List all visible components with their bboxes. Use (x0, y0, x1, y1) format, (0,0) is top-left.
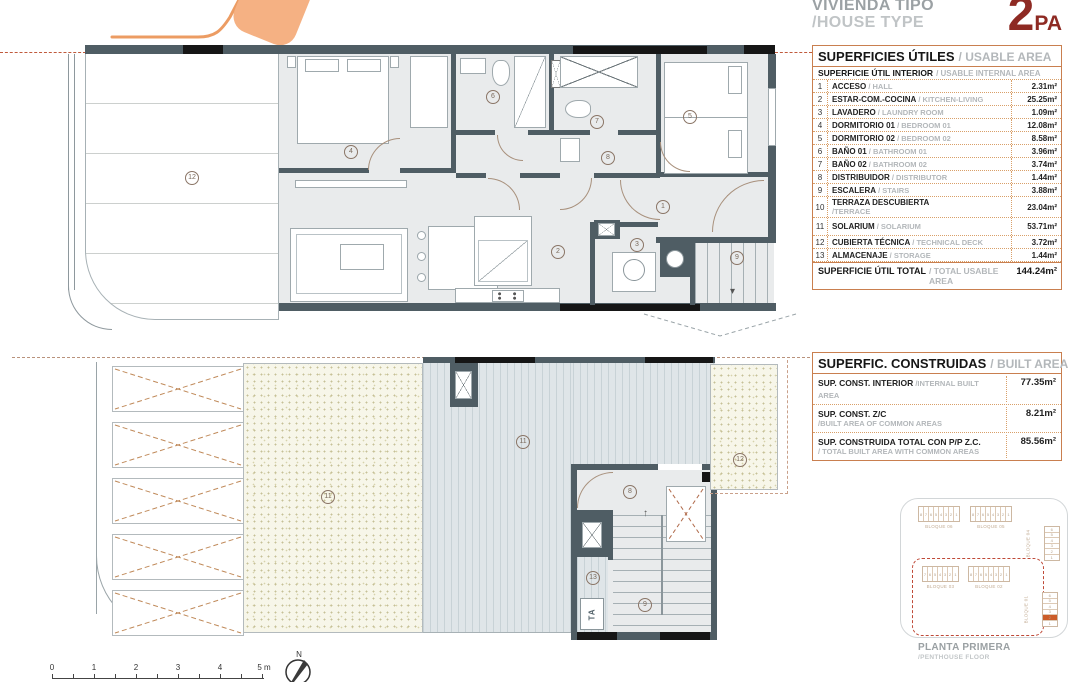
deck-11 (423, 363, 575, 633)
row-number: 7 (813, 158, 828, 170)
shower-icon (514, 56, 546, 128)
chair-icon (417, 252, 426, 261)
row-area: 85.56m² (1006, 435, 1061, 458)
usable-row-6: 6BAÑO 01 / BATHROOM 013.96m² (813, 145, 1061, 158)
built-row-3: SUP. CONSTRUIDA TOTAL CON P/P Z.C./ TOTA… (813, 433, 1061, 460)
usable-total-row: SUPERFICIE ÚTIL TOTAL / TOTAL USABLE ARE… (813, 262, 1061, 289)
total-label-es: SUPERFICIE ÚTIL TOTAL (818, 266, 926, 276)
usable-row-4: 4DORMITORIO 01 / BEDROOM 0112.08m² (813, 119, 1061, 132)
keyplan-block-01: 654321BLOQUE 01 (1012, 592, 1058, 627)
chair-icon (417, 273, 426, 282)
room-marker-13: 13 (586, 571, 600, 585)
room-marker-4: 4 (344, 145, 358, 159)
sink-icon (460, 58, 486, 74)
row-name: LAVADERO / LAUNDRY ROOM (828, 107, 1011, 118)
room-marker-12: 12 (185, 171, 199, 185)
keyplan-block-03: 7654321BLOQUE 03 (922, 566, 959, 589)
row-name: BAÑO 01 / BATHROOM 01 (828, 146, 1011, 157)
row-name: DORMITORIO 02 / BEDROOM 02 (828, 133, 1011, 144)
room-marker-1: 1 (656, 200, 670, 214)
wall (279, 168, 369, 173)
room-marker-2: 2 (551, 245, 565, 259)
table-title-es: SUPERFICIES ÚTILES (818, 49, 955, 64)
pillow-icon (347, 59, 381, 72)
subheader-en: / USABLE INTERNAL AREA (936, 69, 1040, 78)
built-table-header: SUPERFIC. CONSTRUIDAS / BUILT AREA (813, 353, 1061, 374)
usable-row-1: 1ACCESO / HALL2.31m² (813, 80, 1061, 93)
window-icon (768, 88, 776, 146)
row-number: 12 (813, 236, 828, 248)
row-area: 53.71m² (1011, 218, 1061, 235)
pillow-icon (728, 66, 742, 94)
row-area: 77.35m² (1006, 376, 1061, 402)
usable-row-7: 7BAÑO 02 / BATHROOM 023.74m² (813, 158, 1061, 171)
keyplan-block-label: BLOQUE 01 (1023, 596, 1028, 624)
pergola-frame (112, 534, 244, 580)
opening (658, 464, 702, 470)
coffee-table-icon (340, 244, 384, 270)
built-row-1: SUP. CONST. INTERIOR /INTERNAL BUILT ARE… (813, 374, 1061, 405)
usable-rows: 1ACCESO / HALL2.31m²2ESTAR-COM.-COCINA /… (813, 80, 1061, 262)
room-marker-12: 12 (733, 453, 747, 467)
row-number: 4 (813, 119, 828, 131)
washing-machine-icon (623, 259, 645, 281)
row-area: 2.31m² (1011, 80, 1061, 92)
wall (528, 130, 590, 135)
built-row-2: SUP. CONST. Z/C/BUILT AREA OF COMMON ARE… (813, 405, 1061, 433)
wall (183, 45, 223, 54)
usable-row-11: 11SOLARIUM / SOLARIUM53.71m² (813, 218, 1061, 236)
usable-row-12: 12CUBIERTA TÉCNICA / TECHNICAL DECK3.72m… (813, 236, 1061, 249)
keyplan-caption-subtitle: /PENTHOUSE FLOOR (918, 654, 990, 661)
railing-curve (68, 286, 112, 330)
room-marker-11: 11 (321, 490, 335, 504)
stair-void (560, 56, 638, 88)
terrace-12-lower (710, 364, 778, 490)
row-area: 8.21m² (1006, 407, 1061, 430)
usable-row-5: 5DORMITORIO 02 / BEDROOM 028.58m² (813, 132, 1061, 145)
keyplan-unit: 1 (1006, 507, 1011, 521)
keyplan-block-label: BLOQUE 06 (925, 524, 953, 529)
wall (768, 54, 776, 240)
scale-label: 1 (92, 663, 96, 672)
stair-arrow-icon: ▾ (730, 286, 735, 297)
usable-row-10: 10TERRAZA DESCUBIERTA /TERRACE23.04m² (813, 197, 1061, 218)
pergola-frame (112, 478, 244, 524)
usable-row-9: 9ESCALERA / STAIRS3.88m² (813, 184, 1061, 197)
row-number: 1 (813, 80, 828, 92)
toilet-icon (492, 60, 510, 86)
row-name: TERRAZA DESCUBIERTA /TERRACE (828, 197, 1011, 217)
usable-row-3: 3LAVADERO / LAUNDRY ROOM1.09m² (813, 106, 1061, 119)
row-name: ESTAR-COM.-COCINA / KITCHEN-LIVING (828, 94, 1011, 105)
row-area: 8.58m² (1011, 132, 1061, 144)
wall (618, 130, 656, 135)
row-number: 5 (813, 132, 828, 144)
row-name: ESCALERA / STAIRS (828, 185, 1011, 196)
north-arrow-icon (282, 657, 314, 682)
wall (455, 130, 495, 135)
row-label: SUP. CONST. Z/C/BUILT AREA OF COMMON ARE… (813, 407, 1006, 430)
terrace-12 (85, 54, 279, 320)
row-label: SUP. CONSTRUIDA TOTAL CON P/P Z.C./ TOTA… (813, 435, 1006, 458)
table-title-es: SUPERFIC. CONSTRUIDAS (818, 356, 986, 371)
row-name: CUBIERTA TÉCNICA / TECHNICAL DECK (828, 237, 1011, 248)
row-name: DORMITORIO 01 / BEDROOM 01 (828, 120, 1011, 131)
house-type-header: VIVIENDA TIPO /HOUSE TYPE 2PA (812, 0, 1064, 41)
tv-unit-icon (295, 180, 407, 188)
keyplan-caption-title: PLANTA PRIMERA (918, 642, 1011, 653)
wall (656, 54, 661, 177)
total-value: 144.24m² (1016, 266, 1057, 277)
room-marker-3: 3 (630, 238, 644, 252)
total-label-en: / TOTAL USABLE AREA (929, 266, 1016, 286)
keyplan-block-06: 87654321BLOQUE 06 (918, 506, 960, 529)
house-type-code: 2PA (1008, 0, 1062, 39)
row-name: ALMACENAJE / STORAGE (828, 250, 1011, 261)
boundary-dashed-line (0, 52, 86, 53)
pergola-frame (112, 590, 244, 636)
wall (560, 304, 700, 311)
wall (577, 632, 617, 640)
keyplan-unit: 1 (954, 507, 959, 521)
pergola-frame (112, 422, 244, 468)
sheet: ▾ 12 4 6 7 5 1 2 3 8 9 TA ↑ (0, 0, 1070, 682)
pillow-icon (728, 130, 742, 158)
keyplan-block-label: BLOQUE 04 (1025, 530, 1030, 558)
keyplan-block-label: BLOQUE 03 (927, 584, 955, 589)
row-area: 3.74m² (1011, 158, 1061, 170)
row-number: 2 (813, 93, 828, 105)
row-area: 1.44m² (1011, 249, 1061, 261)
row-number: 8 (813, 171, 828, 183)
row-area: 25.25m² (1011, 93, 1061, 105)
keyplan-block-04: 654321BLOQUE 04 (1014, 526, 1060, 561)
bed-divider (664, 117, 748, 118)
keyplan-unit: 1 (953, 567, 958, 581)
row-number: 3 (813, 106, 828, 118)
wall (451, 54, 456, 172)
built-area-table: SUPERFIC. CONSTRUIDAS / BUILT AREA SUP. … (812, 352, 1062, 461)
toilet-icon (565, 100, 591, 118)
boiler-icon (666, 250, 684, 268)
keyplan-block-05: 87654321BLOQUE 05 (970, 506, 1012, 529)
wall (744, 45, 775, 54)
scale-label: 4 (218, 663, 222, 672)
built-rows: SUP. CONST. INTERIOR /INTERNAL BUILT ARE… (813, 374, 1061, 460)
type-suffix: PA (1034, 12, 1062, 35)
room-marker-8: 8 (623, 485, 637, 499)
wall (279, 303, 776, 311)
scale-label: 3 (176, 663, 180, 672)
row-area: 12.08m² (1011, 119, 1061, 131)
row-area: 23.04m² (1011, 197, 1061, 217)
row-area: 3.88m² (1011, 184, 1061, 196)
wardrobe-icon (410, 56, 448, 128)
keyplan-block-02: 87654321BLOQUE 02 (968, 566, 1010, 589)
row-number: 6 (813, 145, 828, 157)
usable-row-2: 2ESTAR-COM.-COCINA / KITCHEN-LIVING25.25… (813, 93, 1061, 106)
kitchen-unit-detail (478, 240, 528, 282)
chair-icon (417, 231, 426, 240)
nightstand-icon (287, 56, 296, 68)
type-number: 2 (1008, 0, 1035, 41)
wall (456, 173, 486, 178)
wall (520, 173, 560, 178)
stair-dashed-flight (640, 312, 800, 338)
row-name: SOLARIUM / SOLARIUM (828, 221, 1011, 232)
railing (68, 54, 75, 290)
row-number: 9 (813, 184, 828, 196)
shaft-icon (455, 371, 472, 399)
scale-label: 2 (134, 663, 138, 672)
row-area: 1.44m² (1011, 171, 1061, 183)
pillow-icon (305, 59, 339, 72)
room-marker-5: 5 (683, 110, 697, 124)
stair-rail (661, 515, 663, 615)
usable-area-table: SUPERFICIES ÚTILES / USABLE AREA SUPERFI… (812, 45, 1062, 290)
pergola-frame (112, 366, 244, 412)
usable-row-8: 8DISTRIBUIDOR / DISTRIBUTOR1.44m² (813, 171, 1061, 184)
keyplan-block-label: BLOQUE 02 (975, 584, 1003, 589)
ta-cabinet: TA (580, 598, 604, 630)
nightstand-icon (390, 56, 399, 68)
row-area: 3.72m² (1011, 236, 1061, 248)
room-marker-9: 9 (638, 598, 652, 612)
room-marker-8: 8 (601, 151, 615, 165)
brand-logo (102, 0, 312, 46)
boundary-dashed-line (775, 52, 812, 53)
keyplan-block-label: BLOQUE 05 (977, 524, 1005, 529)
table-title-en: / BUILT AREA (990, 357, 1068, 371)
stair-arrow-icon: ↑ (643, 508, 648, 519)
hob-icon (492, 290, 524, 302)
shaft-icon (598, 223, 615, 236)
wall (594, 173, 660, 178)
wall (573, 46, 707, 54)
row-number: 13 (813, 249, 828, 261)
room-marker-6: 6 (486, 90, 500, 104)
row-area: 1.09m² (1011, 106, 1061, 118)
deck-11 (573, 363, 715, 466)
shaft-icon (582, 522, 602, 548)
row-area: 3.96m² (1011, 145, 1061, 157)
usable-table-header: SUPERFICIES ÚTILES / USABLE AREA (813, 46, 1061, 67)
room-marker-7: 7 (590, 115, 604, 129)
subheader-es: SUPERFICIE ÚTIL INTERIOR (818, 68, 933, 78)
wall (400, 168, 456, 173)
scale-line (52, 678, 264, 679)
scale-label: 5 m (257, 663, 270, 672)
table-title-en: / USABLE AREA (959, 50, 1052, 64)
room-marker-9: 9 (730, 251, 744, 265)
row-number: 11 (813, 218, 828, 235)
row-name: BAÑO 02 / BATHROOM 02 (828, 159, 1011, 170)
wall (660, 632, 710, 640)
room-marker-11b: 11 (516, 435, 530, 449)
row-number: 10 (813, 197, 828, 217)
keyplan-unit: 1 (1043, 621, 1057, 627)
row-label: SUP. CONST. INTERIOR /INTERNAL BUILT ARE… (813, 376, 1006, 402)
void-x-frame (666, 486, 706, 542)
usable-row-13: 13ALMACENAJE / STORAGE1.44m² (813, 249, 1061, 262)
row-name: ACCESO / HALL (828, 81, 1011, 92)
keyplan-unit: 1 (1045, 555, 1059, 561)
usable-table-subheader: SUPERFICIE ÚTIL INTERIOR / USABLE INTERN… (813, 67, 1061, 80)
row-name: DISTRIBUIDOR / DISTRIBUTOR (828, 172, 1011, 183)
scale-label: 0 (50, 663, 54, 672)
sink-icon (560, 138, 580, 162)
keyplan-unit: 1 (1004, 567, 1009, 581)
